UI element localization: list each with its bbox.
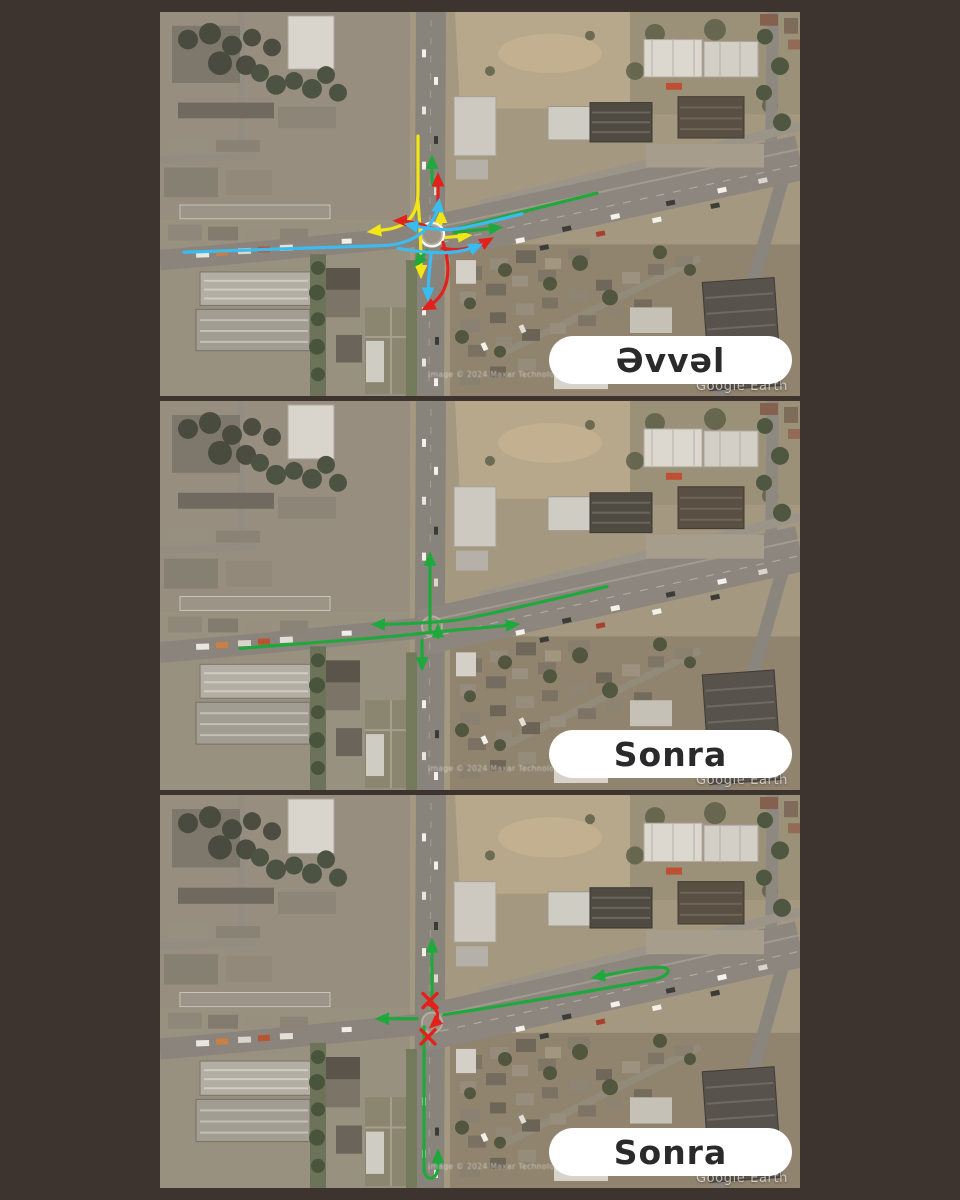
label-pill-after-2: Sonra — [549, 1128, 792, 1176]
imagery-attribution: Image © 2024 Maxar Technologies — [428, 764, 571, 773]
page-background: Image © 2024 Maxar Technologies Google E… — [0, 0, 960, 1200]
map-panel-after-2: Image © 2024 Maxar Technologies Google E… — [160, 795, 800, 1188]
map-panel-before: Image © 2024 Maxar Technologies Google E… — [160, 12, 800, 396]
panel-label: Əvvəl — [616, 344, 726, 377]
panel-label: Sonra — [614, 738, 727, 771]
panel-label: Sonra — [614, 1136, 727, 1169]
imagery-attribution: Image © 2024 Maxar Technologies — [428, 370, 571, 379]
map-panel-after-1: Image © 2024 Maxar Technologies Google E… — [160, 401, 800, 790]
label-pill-after-1: Sonra — [549, 730, 792, 778]
label-pill-before: Əvvəl — [549, 336, 792, 384]
imagery-attribution: Image © 2024 Maxar Technologies — [428, 1162, 571, 1171]
